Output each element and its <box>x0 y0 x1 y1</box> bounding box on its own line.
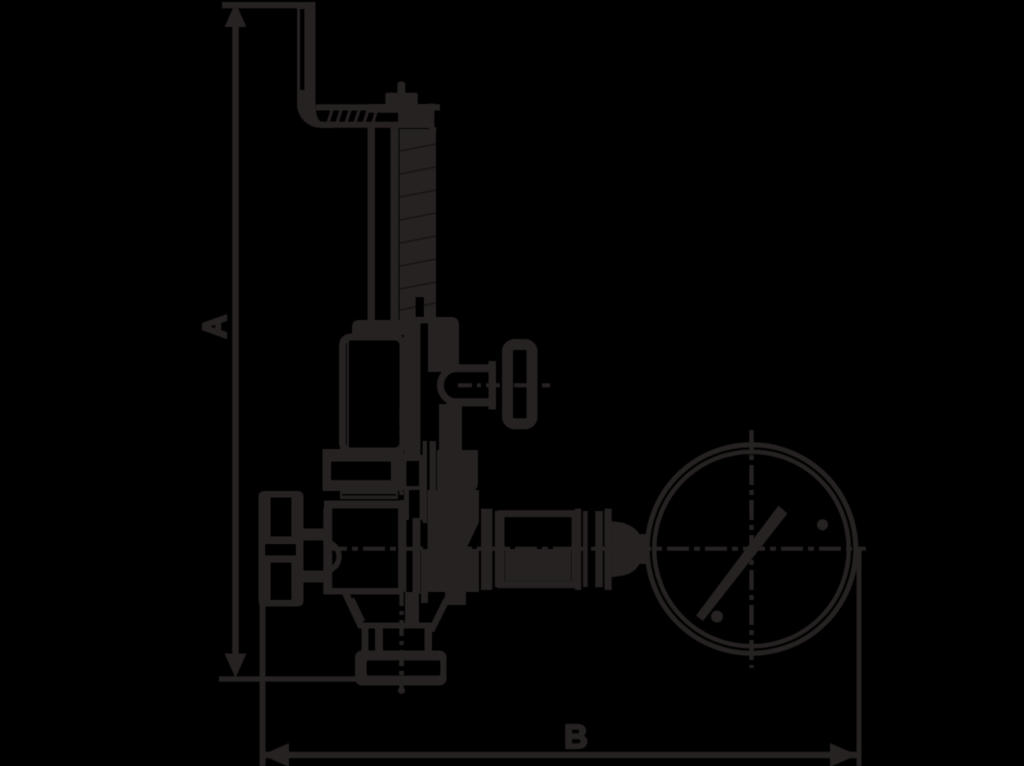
svg-text:A: A <box>196 315 233 339</box>
svg-text:B: B <box>564 718 588 755</box>
